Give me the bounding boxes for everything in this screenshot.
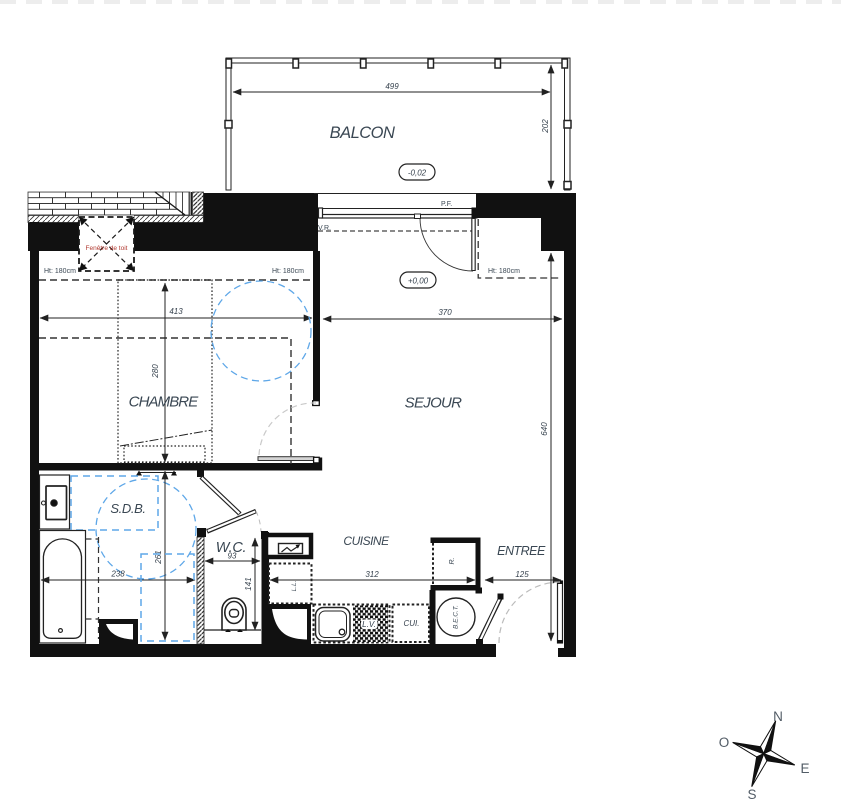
svg-text:280: 280 [151,364,160,379]
svg-text:-0,02: -0,02 [408,169,427,178]
svg-text:S: S [747,787,756,800]
svg-text:L.L.: L.L. [291,580,298,591]
svg-text:L.V.: L.V. [362,620,376,629]
svg-text:499: 499 [385,82,399,91]
svg-text:CHAMBRE: CHAMBRE [129,394,200,411]
svg-text:B.E.C.T.: B.E.C.T. [453,605,460,629]
svg-text:R.: R. [449,557,456,564]
svg-text:125: 125 [515,570,529,579]
svg-text:O: O [719,735,730,750]
svg-text:413: 413 [169,307,183,316]
svg-text:141: 141 [244,577,253,590]
svg-text:312: 312 [365,570,379,579]
svg-text:Fenêtre de toit: Fenêtre de toit [86,245,128,252]
svg-text:SEJOUR: SEJOUR [405,395,463,412]
svg-text:Ht: 180cm: Ht: 180cm [488,268,520,275]
svg-text:370: 370 [438,308,452,317]
svg-text:Ht: 180cm: Ht: 180cm [44,268,76,275]
svg-text:202: 202 [541,119,550,134]
svg-text:N: N [773,709,783,724]
svg-text:238: 238 [110,570,125,579]
svg-text:BALCON: BALCON [330,124,395,142]
svg-text:93: 93 [228,552,237,561]
svg-text:261: 261 [154,550,163,564]
svg-text:+0,00: +0,00 [408,277,429,286]
svg-text:P.F.: P.F. [441,201,452,208]
svg-text:CUI.: CUI. [404,619,420,628]
svg-text:S.D.B.: S.D.B. [110,501,145,516]
svg-text:Ht: 180cm: Ht: 180cm [272,268,304,275]
svg-text:CUISINE: CUISINE [343,534,390,548]
svg-text:640: 640 [540,422,549,436]
svg-text:ENTREE: ENTREE [497,544,546,558]
svg-text:E: E [800,761,809,776]
